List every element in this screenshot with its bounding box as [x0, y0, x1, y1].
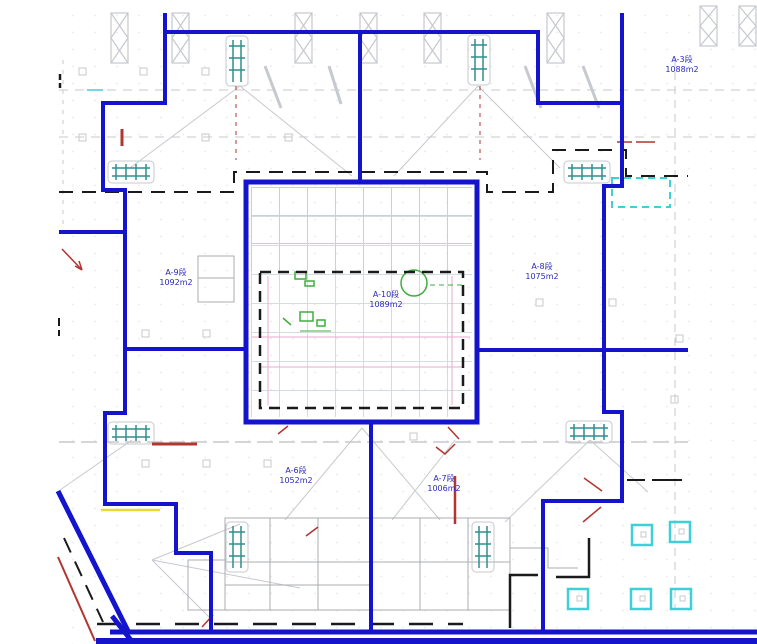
zone-area: 1092m2 [152, 278, 200, 288]
scaffold-v-top-left [226, 36, 248, 86]
core-accent-lines [252, 276, 470, 405]
cad-drawing: A-9段 1092m2 A-10段 1089m2 A-8段 1075m2 A-6… [0, 0, 757, 644]
red-marks [58, 86, 655, 641]
zone-area: 1088m2 [658, 65, 706, 75]
site-plan-linework [0, 0, 757, 644]
scaffold-v-bottom-left [226, 522, 248, 572]
zone-label-a7: A-7段 1006m2 [420, 474, 468, 494]
scaffold-h-left-mid [108, 161, 154, 183]
zone-name: A-7段 [420, 474, 468, 484]
column-grid-lines [59, 58, 755, 610]
zone-area: 1006m2 [420, 484, 468, 494]
zone-label-a9: A-9段 1092m2 [152, 268, 200, 288]
zone-area: 1075m2 [518, 272, 566, 282]
scaffold-v-top-right [468, 35, 490, 85]
zone-label-a8: A-8段 1075m2 [518, 262, 566, 282]
dashed-meander-line [59, 150, 688, 192]
zone-area: 1052m2 [272, 476, 320, 486]
scaffold-v-bottom-right [472, 522, 494, 572]
zone-name: A-10段 [362, 290, 410, 300]
zone-name: A-6段 [272, 466, 320, 476]
boundary-east [543, 13, 622, 633]
scaffold-h-right-mid [564, 161, 610, 183]
section-boundaries [58, 13, 757, 644]
boundary-west [103, 13, 211, 633]
cyan-column-squares [568, 522, 691, 609]
zone-area: 1089m2 [362, 300, 410, 310]
ramp-diagonal-1 [58, 491, 128, 631]
zone-label-a10: A-10段 1089m2 [362, 290, 410, 310]
zone-name: A-8段 [518, 262, 566, 272]
zone-name: A-9段 [152, 268, 200, 278]
zone-label-a6: A-6段 1052m2 [272, 466, 320, 486]
scaffold-h-right-low [566, 421, 612, 443]
zone-label-a3: A-3段 1088m2 [658, 55, 706, 75]
zone-name: A-3段 [658, 55, 706, 65]
